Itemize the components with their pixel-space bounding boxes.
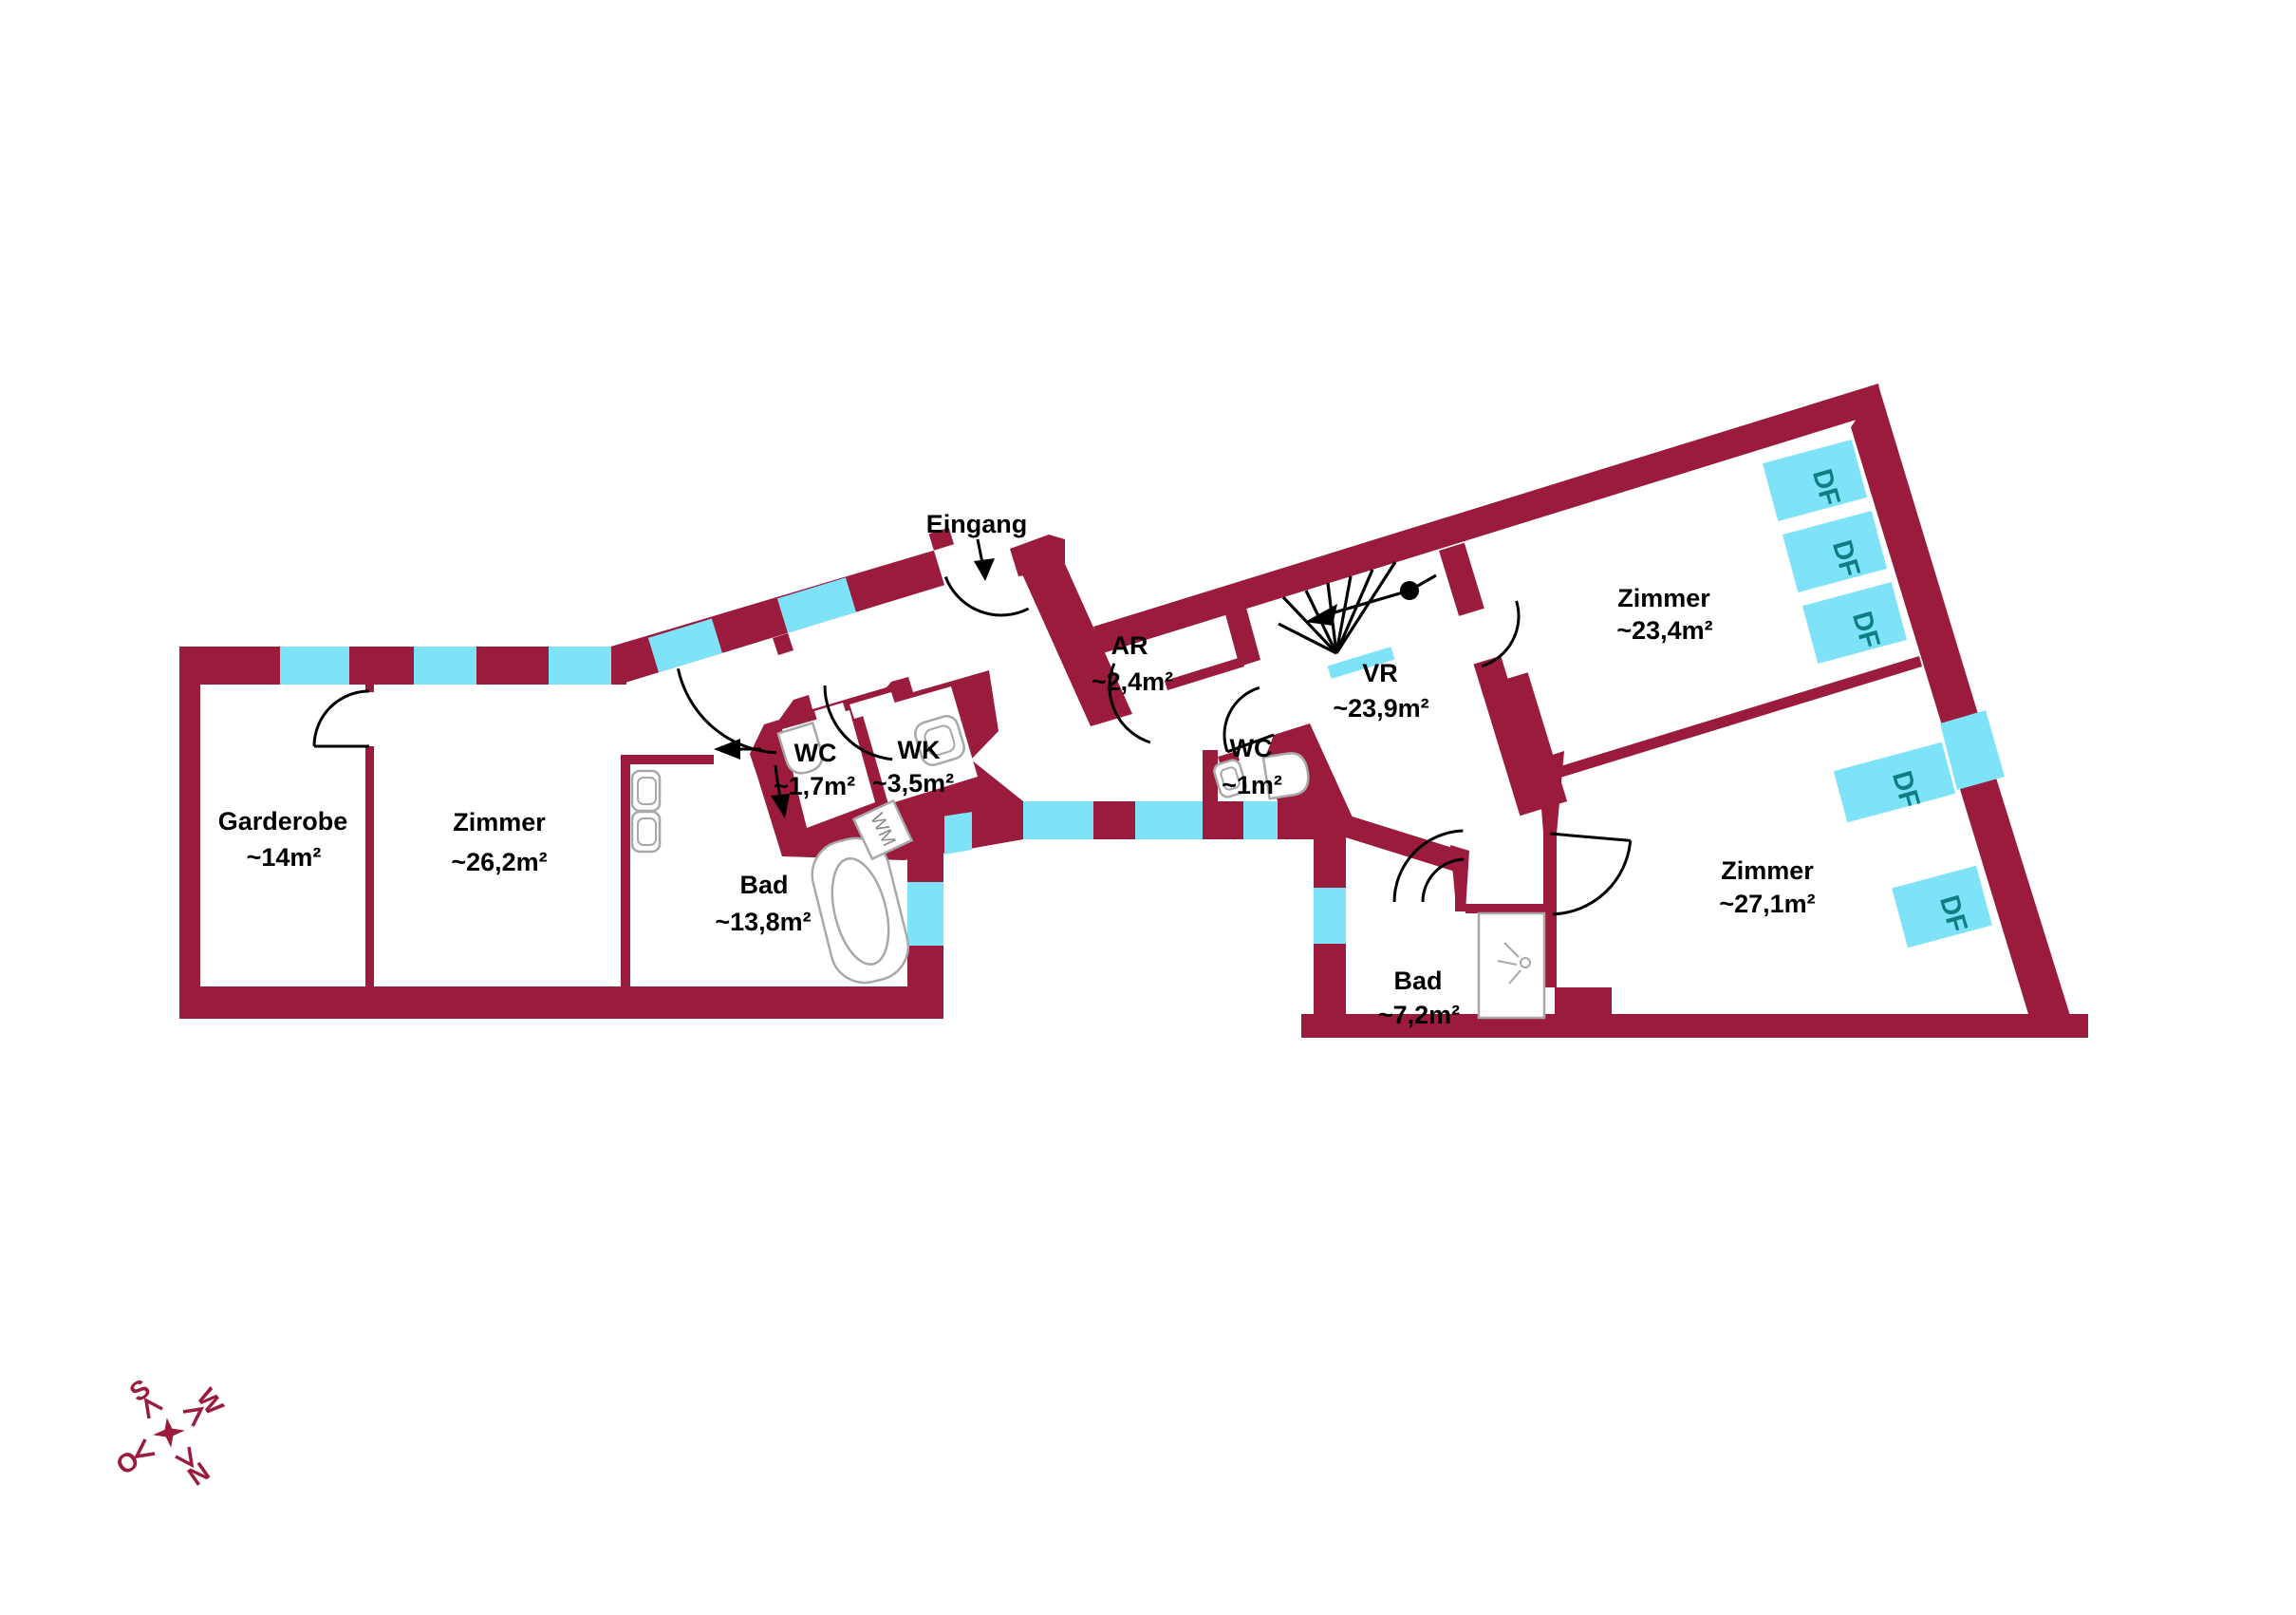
svg-text:Garderobe: Garderobe [218,807,348,836]
svg-text:~1m²: ~1m² [1222,771,1282,799]
svg-text:~23,9m²: ~23,9m² [1333,694,1428,723]
svg-text:Eingang: Eingang [926,510,1028,538]
svg-text:Zimmer: Zimmer [1721,856,1814,885]
svg-text:~7,2m²: ~7,2m² [1378,1001,1460,1029]
svg-text:~2,4m²: ~2,4m² [1092,667,1173,696]
svg-text:WK: WK [898,736,941,764]
svg-text:Bad: Bad [739,871,788,899]
svg-text:~3,5m²: ~3,5m² [872,769,954,798]
svg-text:AR: AR [1111,631,1148,660]
svg-text:~23,4m²: ~23,4m² [1616,616,1712,645]
svg-text:~26,2m²: ~26,2m² [451,848,547,876]
svg-text:~13,8m²: ~13,8m² [715,908,811,936]
svg-text:~1,7m²: ~1,7m² [774,772,855,800]
svg-text:Zimmer: Zimmer [453,808,546,836]
svg-text:WC: WC [794,739,837,767]
svg-text:VR: VR [1362,659,1398,687]
svg-text:~27,1m²: ~27,1m² [1719,890,1815,918]
svg-text:Zimmer: Zimmer [1617,584,1710,612]
svg-text:Bad: Bad [1393,967,1442,995]
svg-text:WC: WC [1230,734,1273,762]
svg-text:~14m²: ~14m² [247,843,322,872]
